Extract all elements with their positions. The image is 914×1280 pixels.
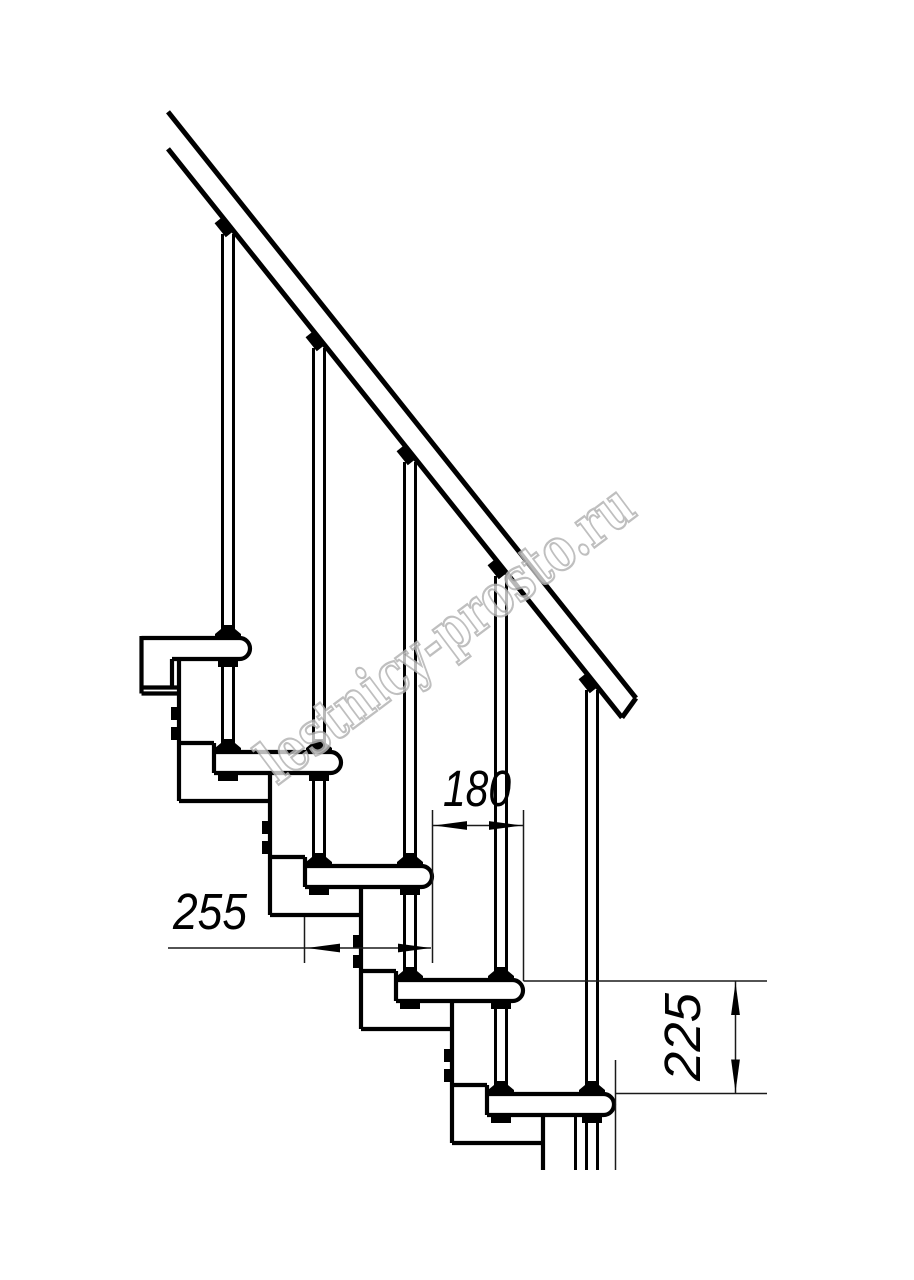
module-1-bolt-icon: [171, 727, 181, 740]
baluster-5-foot-icon: [579, 1085, 605, 1094]
post-2-foot-icon: [306, 857, 332, 866]
arrowhead-left-icon: [307, 944, 340, 953]
post-3-nut-icon: [400, 1001, 420, 1009]
handrail-end-cut: [622, 698, 636, 717]
dimension-value-225: 225: [654, 992, 711, 1082]
tread-5: [487, 1094, 614, 1115]
module-1-bolt-icon: [171, 707, 181, 720]
baluster-2-rail-fitting-icon: [306, 330, 326, 351]
baluster-3-rail-fitting-icon: [397, 444, 417, 465]
dimension-step-run: 180: [433, 760, 524, 981]
post-1-foot-icon: [215, 743, 241, 752]
baluster-4-foot-icon: [488, 971, 514, 980]
handrail-upper-edge: [168, 112, 636, 698]
arrowhead-left-icon: [434, 821, 467, 830]
dimension-annotations: 255 180 225: [168, 760, 767, 1170]
tread-4: [396, 980, 523, 1001]
module-4-bolt-icon: [444, 1069, 454, 1082]
baluster-5-rail-fitting-icon: [579, 672, 599, 693]
post-3-nut-icon: [400, 887, 420, 895]
post-1-nut-icon: [218, 773, 238, 781]
tread-1: [142, 638, 251, 659]
module-4-bolt-icon: [444, 1049, 454, 1062]
post-4-nut-icon: [491, 1115, 511, 1123]
post-1-nut-icon: [218, 659, 238, 667]
post-2-nut-icon: [309, 887, 329, 895]
post-5-nut-icon: [582, 1115, 602, 1123]
post-3-foot-icon: [403, 967, 417, 972]
baluster-1-rail-fitting-icon: [215, 216, 235, 237]
arrowhead-up-icon: [731, 983, 740, 1016]
post-1-foot-icon: [221, 739, 235, 744]
post-4-nut-icon: [491, 1001, 511, 1009]
baluster-1-foot-icon: [215, 629, 241, 638]
dimension-value-180: 180: [443, 760, 511, 817]
technical-drawing: 255 180 225 lestnicy-prosto.ru: [0, 0, 914, 1280]
module-2-bolt-icon: [262, 841, 272, 854]
arrowhead-down-icon: [731, 1060, 740, 1093]
dimension-value-255: 255: [172, 883, 247, 940]
module-2-bolt-icon: [262, 821, 272, 834]
post-4-foot-icon: [494, 1081, 508, 1086]
module-3-bolt-icon: [353, 955, 363, 968]
module-3-bolt-icon: [353, 935, 363, 948]
post-3-foot-icon: [397, 971, 423, 980]
tread-3: [305, 866, 432, 887]
post-2-foot-icon: [312, 853, 326, 858]
baluster-5-foot-icon: [585, 1081, 599, 1086]
baluster-4-foot-icon: [494, 967, 508, 972]
drawing-page: 255 180 225 lestnicy-prosto.ru: [0, 0, 914, 1280]
baluster-3-foot-icon: [403, 853, 417, 858]
dimension-step-rise: 225: [524, 981, 768, 1170]
baluster-3-foot-icon: [397, 857, 423, 866]
baluster-1-foot-icon: [221, 625, 235, 630]
post-4-foot-icon: [488, 1085, 514, 1094]
